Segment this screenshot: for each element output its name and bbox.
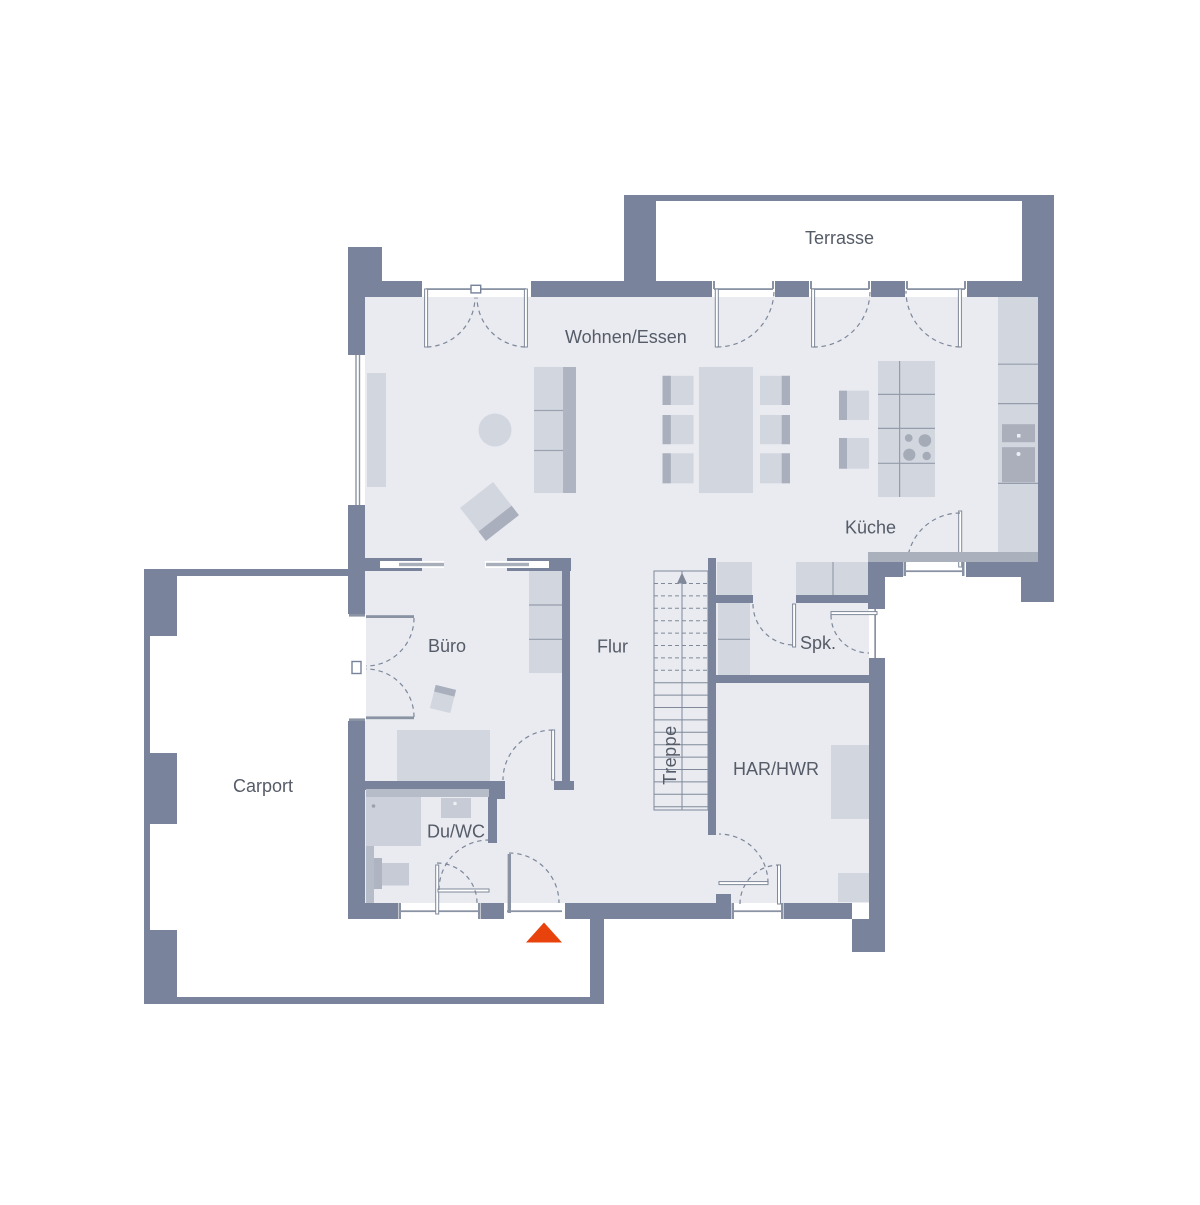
svg-text:Spk.: Spk. <box>800 633 836 653</box>
svg-text:HAR/HWR: HAR/HWR <box>733 759 819 779</box>
svg-text:Wohnen/Essen: Wohnen/Essen <box>565 327 687 347</box>
svg-text:Terrasse: Terrasse <box>805 228 874 248</box>
svg-text:Flur: Flur <box>597 637 628 657</box>
svg-text:Carport: Carport <box>233 776 293 796</box>
svg-text:Treppe: Treppe <box>660 725 680 784</box>
svg-text:Büro: Büro <box>428 636 466 656</box>
svg-text:Küche: Küche <box>845 518 896 538</box>
svg-text:Du/WC: Du/WC <box>427 822 485 842</box>
